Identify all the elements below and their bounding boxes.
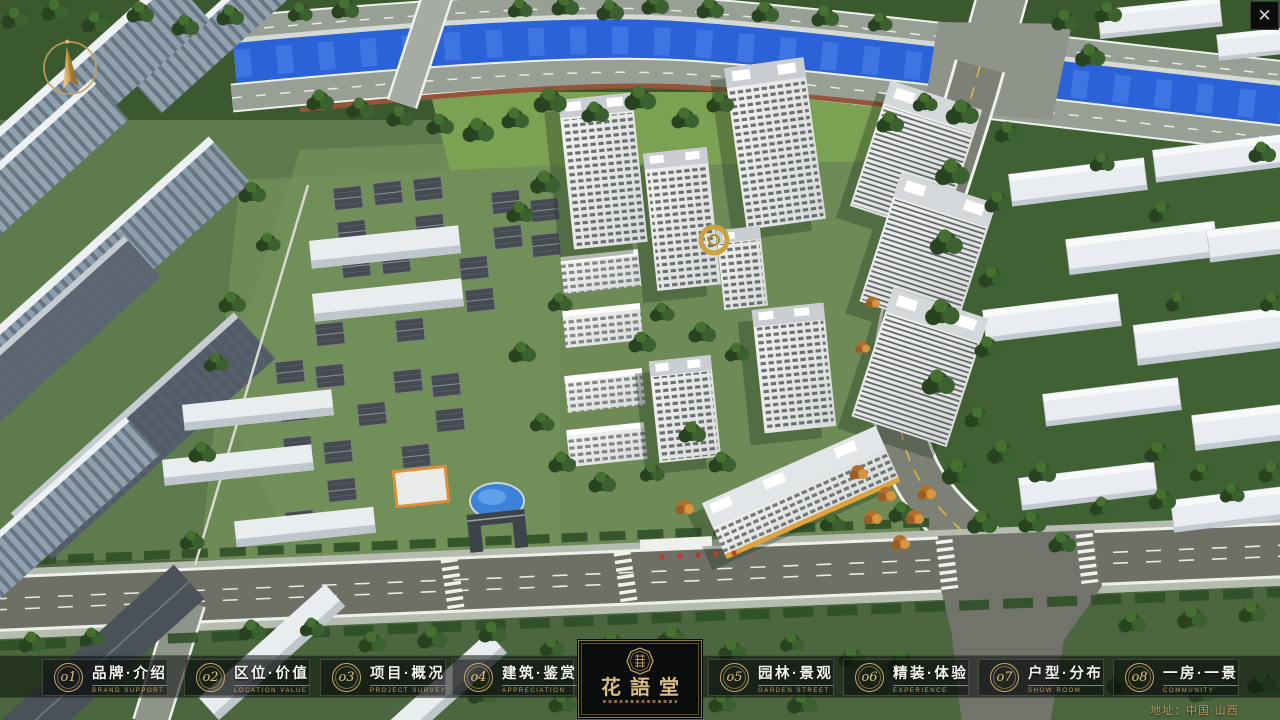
nav-item-label: 一房·一景 [1163,662,1238,683]
close-icon: ✕ [1257,7,1271,24]
nav-item-location[interactable]: o2 区位·价值 LOCATION VALUE [184,659,310,696]
nav-item-number-badge: o2 [196,663,225,692]
nav-item-label: 建筑·鉴赏 [502,662,577,683]
nav-item-label: 区位·价值 [234,662,309,683]
close-button[interactable]: ✕ [1250,1,1279,30]
compass-icon [40,38,100,98]
nav-item-sublabel: COMMUNITY [1163,688,1214,694]
nav-item-sublabel: APPRECIATION [502,688,565,694]
address-text: 地址：中国·山西 [1150,702,1239,718]
presentation-root: ✕ o1 品牌·介绍 BRAND SUPPORT o2 区位·价值 LOCATI… [0,0,1280,720]
nav-item-interior[interactable]: o6 精装·体验 EXPERIENCE [843,659,969,696]
nav-item-number-badge: o5 [720,663,749,692]
nav-item-number-badge: o6 [855,663,884,692]
logo-title: 花語堂 [592,676,688,698]
nav-item-divider [758,685,833,686]
nav-item-sublabel: SHOW ROOM [1028,688,1081,694]
nav-item-label: 品牌·介绍 [92,662,167,683]
nav-item-project[interactable]: o3 项目·概况 PROJECT SURVEY [320,659,446,696]
nav-item-sublabel: GARDEN STREET [758,688,830,694]
compass-indicator [40,38,100,98]
nav-item-number-badge: o3 [332,663,361,692]
nav-item-number-badge: o4 [464,663,493,692]
nav-item-divider [92,685,167,686]
nav-item-label: 项目·概况 [370,662,445,683]
nav-item-divider [370,685,447,686]
nav-item-divider [893,685,968,686]
nav-item-community[interactable]: o8 一房·一景 COMMUNITY [1113,659,1239,696]
nav-item-divider [234,685,309,686]
nav-item-brand[interactable]: o1 品牌·介绍 BRAND SUPPORT [42,659,168,696]
nav-item-sublabel: EXPERIENCE [893,688,948,694]
nav-item-divider [1028,685,1103,686]
nav-item-number-badge: o7 [990,663,1019,692]
nav-item-label: 户型·分布 [1028,662,1103,683]
logo-subtitle-strip [603,700,677,703]
nav-item-label: 精装·体验 [893,662,968,683]
address-value: 中国·山西 [1186,705,1239,717]
site-map-3d-view[interactable] [0,0,1280,720]
nav-item-garden[interactable]: o5 园林·景观 GARDEN STREET [708,659,834,696]
logo-seal-icon [626,647,654,675]
nav-item-architecture[interactable]: o4 建筑·鉴赏 APPRECIATION [452,659,574,696]
nav-item-number-badge: o1 [54,663,83,692]
nav-item-divider [1163,685,1238,686]
nav-item-number-badge: o8 [1125,663,1154,692]
nav-item-sublabel: BRAND SUPPORT [92,688,164,694]
logo-home-panel[interactable]: 花語堂 [578,640,702,718]
address-label: 地址： [1150,705,1186,717]
nav-item-floorplan[interactable]: o7 户型·分布 SHOW ROOM [978,659,1104,696]
nav-item-sublabel: PROJECT SURVEY [370,688,447,694]
nav-item-divider [502,685,577,686]
nav-item-label: 园林·景观 [758,662,833,683]
nav-item-sublabel: LOCATION VALUE [234,688,308,694]
